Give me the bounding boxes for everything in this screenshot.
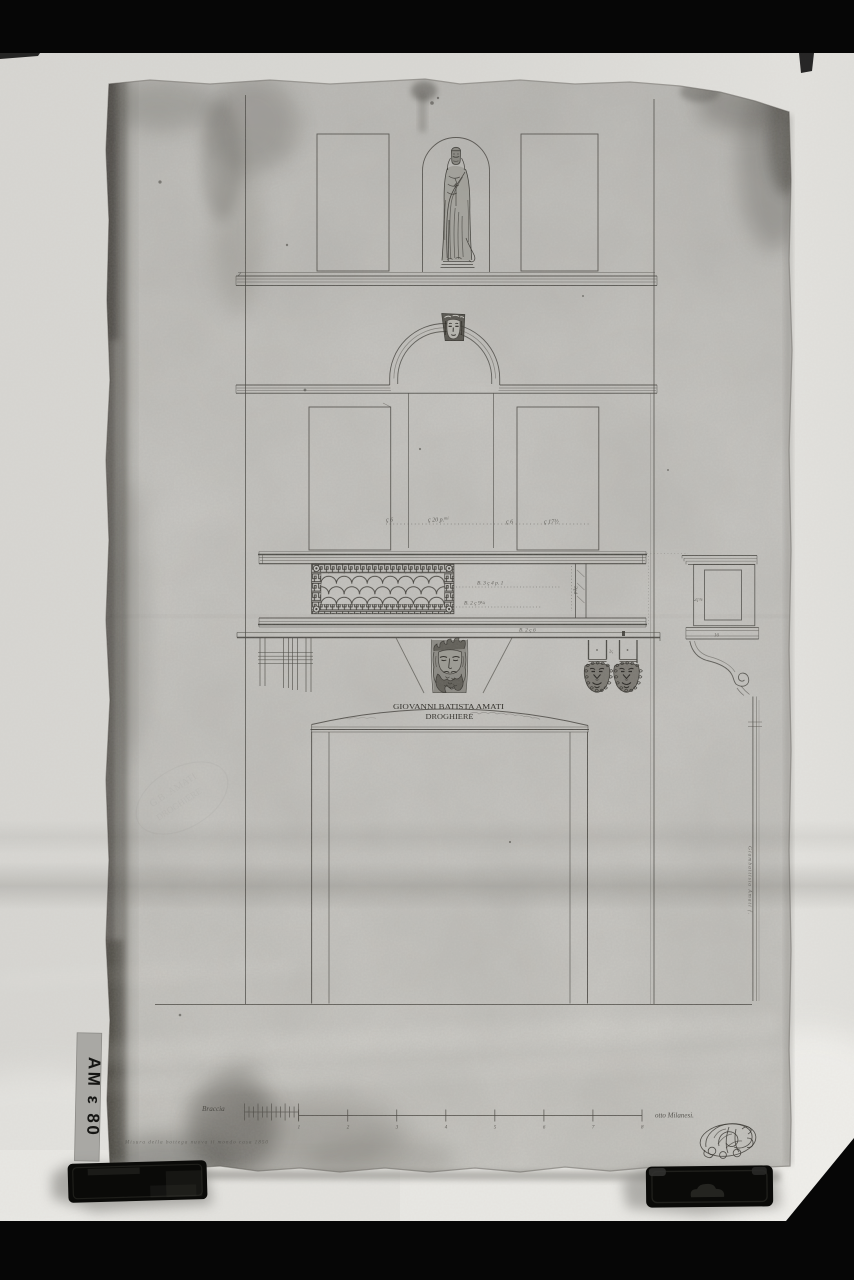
svg-text:AM ε 80: AM ε 80 bbox=[83, 1057, 104, 1138]
